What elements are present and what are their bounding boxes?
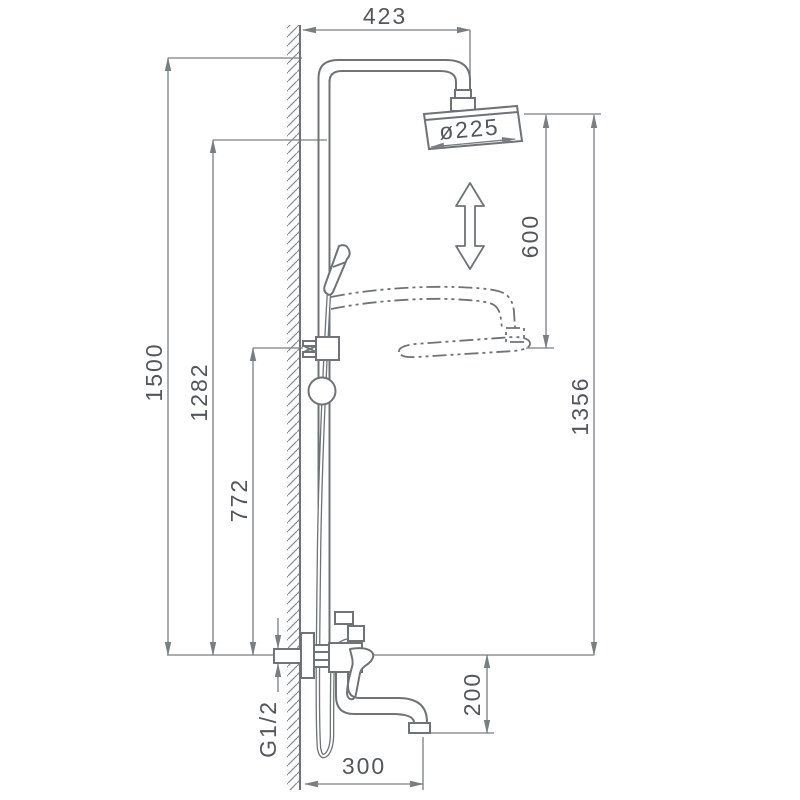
dim-label-g12: G1/2	[255, 700, 281, 758]
dim-total-height: 1500	[141, 58, 302, 655]
hand-shower-body	[324, 245, 349, 295]
connection-nut	[314, 645, 330, 667]
wall-escutcheon	[301, 633, 314, 678]
slider-knob	[309, 378, 336, 405]
dim-height-adjustment: 600	[517, 115, 554, 348]
dim-top-offset: 423	[303, 3, 470, 86]
shower-hose	[318, 292, 350, 756]
dim-label-772: 772	[226, 478, 252, 522]
phantom-arm-outer	[331, 287, 515, 328]
technical-drawing-canvas: 423 1500 1282 772 600	[0, 0, 800, 800]
dim-spout-reach: 300	[305, 737, 423, 790]
phantom-lowered-position	[331, 287, 530, 357]
dim-label-diameter: ø225	[438, 113, 500, 144]
dim-label-600: 600	[517, 214, 543, 258]
overhead-shower-head: ø225	[424, 106, 522, 149]
dim-label-1282: 1282	[186, 362, 212, 421]
shower-arm	[319, 60, 476, 111]
phantom-shower-head	[399, 337, 530, 357]
phantom-connector	[506, 328, 524, 342]
shower-arm-inner-edge	[330, 71, 457, 90]
wall	[287, 25, 300, 790]
slider-block	[316, 337, 339, 360]
dim-inlet-thread: G1/2	[255, 618, 281, 758]
height-adjust-arrow-icon	[456, 183, 484, 269]
head-connector-stem	[455, 90, 471, 98]
hand-shower	[324, 245, 349, 295]
dim-label-300: 300	[342, 753, 386, 779]
spout-outlet	[409, 723, 430, 733]
bracket-flange-bottom	[303, 352, 316, 357]
shower-arm-outer-edge	[319, 60, 471, 90]
hose-outline	[318, 292, 350, 756]
dimension-layer: 423 1500 1282 772 600	[141, 3, 601, 790]
slider-bracket	[303, 337, 339, 360]
dim-spout-drop: 200	[430, 655, 494, 733]
dim-label-200: 200	[459, 672, 485, 716]
bracket-flange-top	[303, 341, 316, 346]
mixer-handle	[347, 648, 373, 699]
wall-hatching	[287, 25, 300, 790]
dim-upper-outlet-height: 1282	[186, 140, 327, 655]
dim-overall-right-height: 1356	[567, 115, 594, 655]
dim-label-423: 423	[363, 3, 407, 29]
dim-label-1356: 1356	[567, 376, 593, 435]
riser-base-collar	[335, 612, 353, 624]
phantom-arm-inner	[331, 299, 502, 328]
shower-system-drawing: 423 1500 1282 772 600	[0, 0, 800, 800]
dim-label-1500: 1500	[141, 342, 167, 401]
hose-outlet-fitting	[348, 626, 364, 641]
inlet-nipple	[274, 649, 301, 663]
